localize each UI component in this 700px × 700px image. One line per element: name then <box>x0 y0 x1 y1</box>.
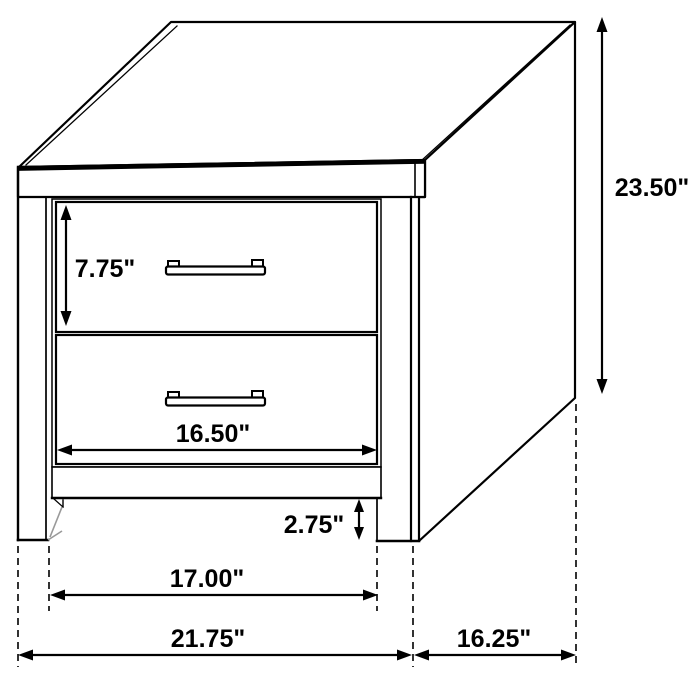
dim-label-drawer-height: 7.75" <box>75 255 136 283</box>
handle-bar <box>166 398 265 406</box>
dim-label-base-clearance: 2.75" <box>284 511 345 539</box>
recess-bevel <box>54 499 63 507</box>
dim-label-overall-width: 21.75" <box>171 625 245 653</box>
dim-overall-width: 21.75" <box>18 625 412 661</box>
nightstand-dimension-drawing: 23.50" 7.75" 16.50" 2.75" 17.00" 21.75" <box>0 0 700 700</box>
dim-label-inner-leg-width: 17.00" <box>170 565 244 593</box>
arrowhead-down-icon <box>597 379 608 394</box>
dimension-diagram: 23.50" 7.75" 16.50" 2.75" 17.00" 21.75" <box>0 0 700 700</box>
dim-inner-leg-width: 17.00" <box>50 565 378 601</box>
dim-label-drawer-width: 16.50" <box>176 420 250 448</box>
arrowhead-left-icon <box>50 590 65 601</box>
handle-bar <box>166 267 265 275</box>
arrowhead-up-icon <box>354 499 364 512</box>
dim-overall-height: 23.50" <box>597 17 690 394</box>
arrowhead-down-icon <box>354 527 364 540</box>
dim-label-overall-depth: 16.25" <box>457 625 531 653</box>
arrowhead-right-icon <box>363 590 378 601</box>
bottom-rail <box>52 467 381 498</box>
dim-overall-depth: 16.25" <box>414 625 576 661</box>
arrowhead-left-icon <box>414 650 429 661</box>
dim-base-clearance: 2.75" <box>284 499 364 540</box>
dim-label-overall-height: 23.50" <box>615 174 689 202</box>
arrowhead-right-icon <box>561 650 576 661</box>
arrowhead-up-icon <box>597 17 608 32</box>
arrowhead-right-icon <box>397 650 412 661</box>
arrowhead-left-icon <box>18 650 33 661</box>
